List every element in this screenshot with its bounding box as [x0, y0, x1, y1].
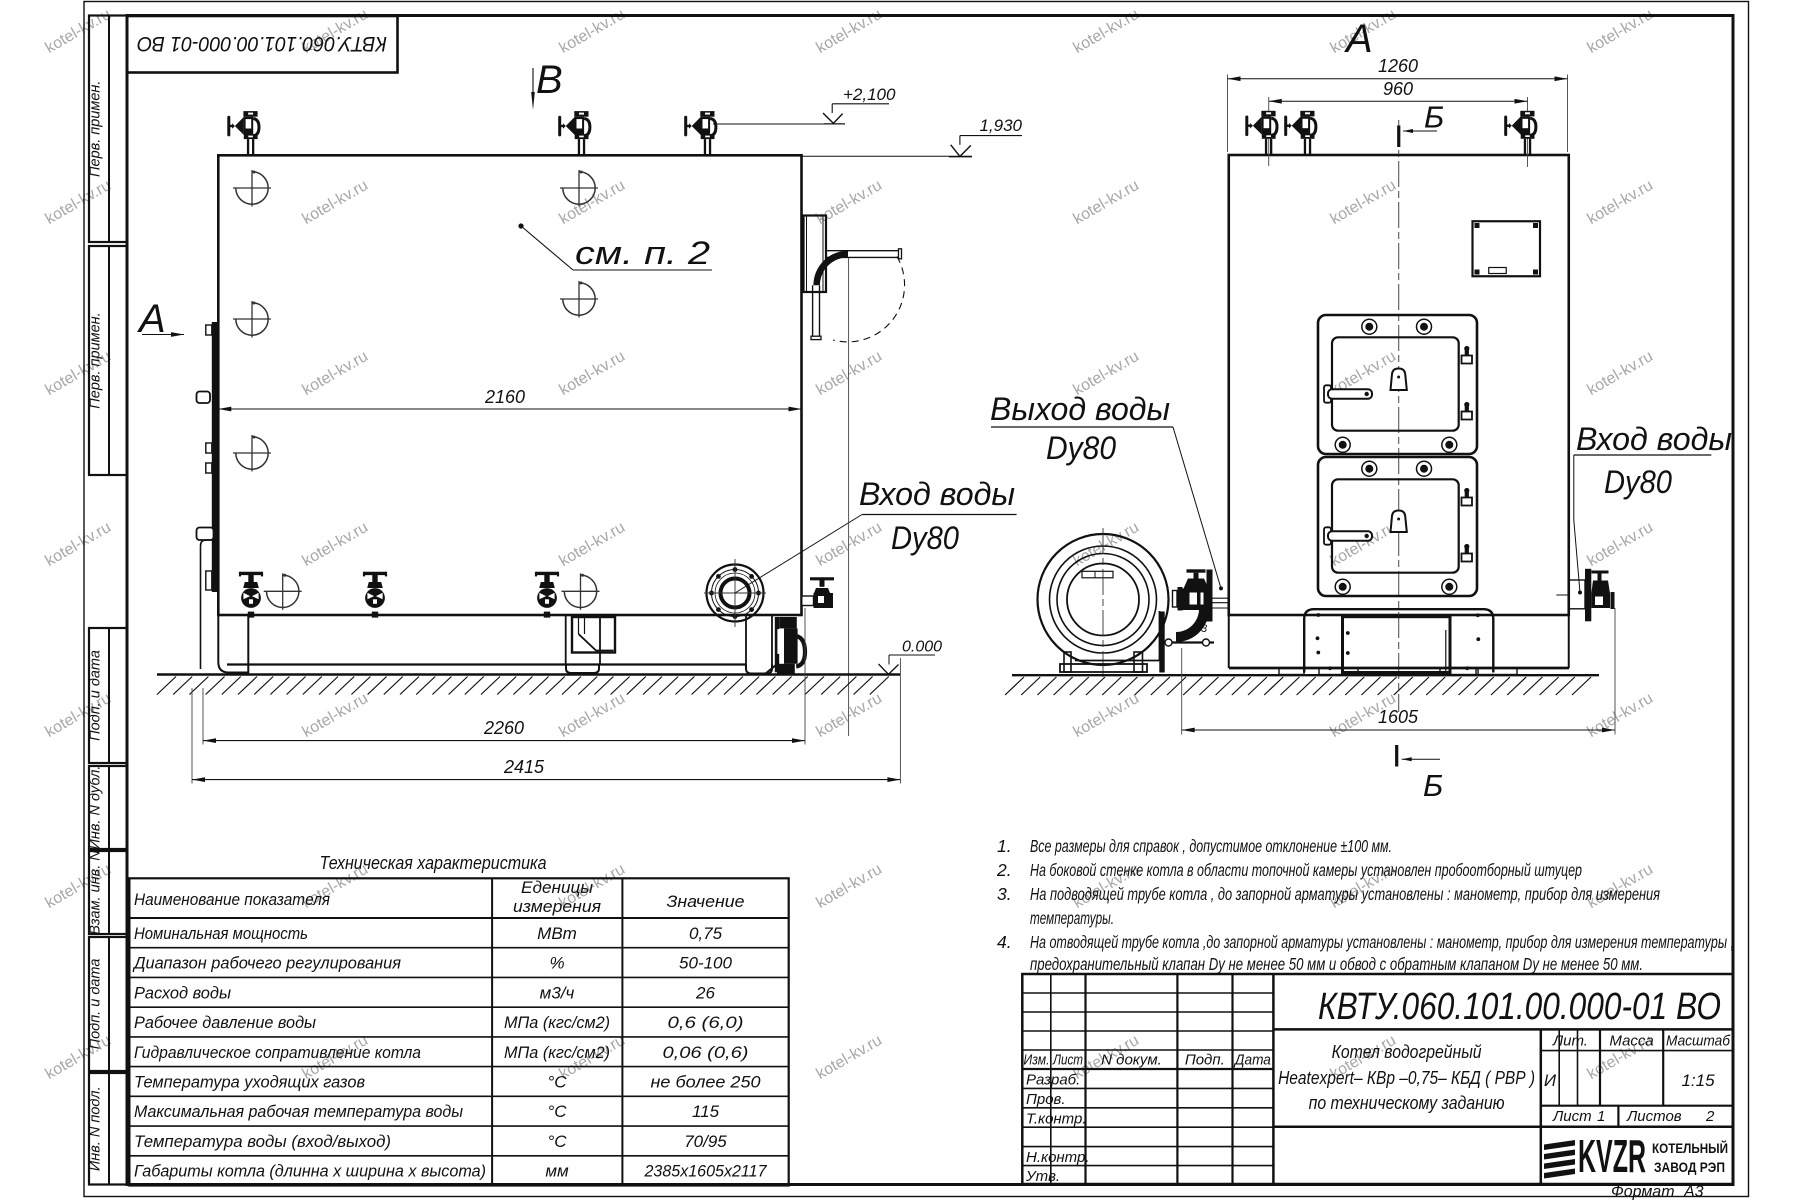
svg-text:МВт: МВт [537, 924, 577, 943]
svg-text:Значение: Значение [667, 892, 745, 911]
svg-text:0,75: 0,75 [689, 924, 723, 943]
svg-text:А3: А3 [1683, 1184, 1704, 1200]
svg-text:Подп. и дата: Подп. и дата [88, 650, 104, 741]
svg-text:предохранительный клапан Dу н: предохранительный клапан Dу не менее 50 … [1030, 954, 1643, 974]
svg-text:2260: 2260 [483, 718, 524, 738]
svg-text:И: И [1544, 1071, 1557, 1090]
svg-text:°С: °С [547, 1102, 567, 1121]
svg-text:КОТЕЛЬНЫЙ: КОТЕЛЬНЫЙ [1652, 1141, 1728, 1156]
svg-text:Перв. примен.: Перв. примен. [88, 312, 104, 408]
svg-text:Dy80: Dy80 [891, 520, 959, 556]
svg-text:1260: 1260 [1378, 56, 1418, 76]
svg-text:1:15: 1:15 [1681, 1071, 1715, 1090]
svg-text:°С: °С [547, 1132, 567, 1151]
svg-text:0,06 (0,6): 0,06 (0,6) [663, 1043, 749, 1062]
svg-text:2415: 2415 [503, 757, 545, 777]
svg-text:2160: 2160 [484, 387, 525, 407]
svg-text:+2,100: +2,100 [843, 85, 896, 104]
svg-text:Пров.: Пров. [1026, 1091, 1066, 1108]
svg-text:Все размеры для справок , допу: Все размеры для справок , допустимое отк… [1030, 836, 1392, 856]
svg-text:Выход воды: Выход воды [990, 391, 1170, 427]
svg-text:Лист: Лист [1552, 1108, 1592, 1125]
svg-text:Масштаб: Масштаб [1666, 1033, 1731, 1050]
svg-text:3: 3 [1201, 623, 1208, 635]
svg-text:Еденицы: Еденицы [521, 878, 593, 897]
svg-text:115: 115 [692, 1102, 720, 1121]
svg-text:Н.контр.: Н.контр. [1026, 1149, 1090, 1166]
svg-text:На боковой стенке котла в обла: На боковой стенке котла в области топочн… [1030, 860, 1582, 880]
svg-text:по техническому заданию: по техническому заданию [1309, 1093, 1505, 1113]
svg-text:26: 26 [695, 983, 715, 1002]
svg-text:Dy80: Dy80 [1604, 464, 1672, 500]
svg-text:Dy80: Dy80 [1046, 430, 1116, 466]
svg-text:Техническая характеристика: Техническая характеристика [320, 853, 547, 873]
svg-text:МПа (кгс/см2): МПа (кгс/см2) [504, 1043, 610, 1062]
svg-text:КВТУ.060.101.00.000-01 ВО: КВТУ.060.101.00.000-01 ВО [137, 32, 387, 55]
svg-text:1.: 1. [997, 836, 1012, 856]
svg-text:Взам. инв. N: Взам. инв. N [88, 850, 104, 935]
svg-text:Утв.: Утв. [1025, 1168, 1060, 1185]
svg-text:температуры.: температуры. [1030, 908, 1114, 928]
svg-text:0.000: 0.000 [902, 639, 942, 656]
svg-text:Дата: Дата [1233, 1052, 1271, 1069]
svg-text:960: 960 [1383, 79, 1413, 99]
svg-text:1,930: 1,930 [979, 116, 1022, 135]
svg-text:Температура уходящих газов: Температура уходящих газов [134, 1072, 365, 1091]
svg-text:МПа (кгс/см2): МПа (кгс/см2) [504, 1013, 610, 1032]
svg-text:В: В [536, 58, 563, 102]
svg-text:2.: 2. [996, 860, 1012, 880]
svg-text:не более 250: не более 250 [651, 1072, 762, 1091]
svg-text:Разраб.: Разраб. [1026, 1072, 1080, 1089]
svg-text:4.: 4. [997, 932, 1012, 952]
svg-text:0,6 (6,0): 0,6 (6,0) [668, 1013, 744, 1032]
svg-text:Heatexpert– КВр –0,75– КБД ( Р: Heatexpert– КВр –0,75– КБД ( РВР ) [1278, 1068, 1535, 1088]
svg-text:мм: мм [545, 1162, 569, 1181]
svg-text:м3/ч: м3/ч [540, 983, 575, 1002]
svg-text:Вход воды: Вход воды [859, 476, 1015, 512]
svg-text:Подп.: Подп. [1185, 1052, 1225, 1069]
svg-text:°С: °С [547, 1072, 567, 1091]
svg-text:1: 1 [1597, 1108, 1605, 1125]
svg-text:3.: 3. [997, 884, 1012, 904]
svg-text:Перв. примен.: Перв. примен. [88, 81, 104, 177]
svg-text:KVZR: KVZR [1578, 1130, 1646, 1182]
svg-text:Гидравлическое сопративление к: Гидравлическое сопративление котла [134, 1043, 421, 1062]
svg-text:Т.контр.: Т.контр. [1026, 1110, 1087, 1127]
svg-text:измерения: измерения [513, 897, 601, 916]
svg-text:Котел водогрейный: Котел водогрейный [1332, 1042, 1482, 1062]
svg-text:50-100: 50-100 [679, 954, 732, 973]
svg-text:Номинальная мощность: Номинальная мощность [134, 924, 308, 943]
svg-text:Формат: Формат [1611, 1184, 1675, 1200]
svg-text:КВТУ.060.101.00.000-01 ВО: КВТУ.060.101.00.000-01 ВО [1318, 986, 1721, 1028]
svg-text:На отводящей трубе котла ,до з: На отводящей трубе котла ,до запорной ар… [1030, 932, 1734, 952]
svg-text:Рабочее давление воды: Рабочее давление воды [134, 1013, 316, 1032]
svg-text:Листов: Листов [1626, 1108, 1682, 1125]
svg-text:2385х1605х2117: 2385х1605х2117 [644, 1162, 767, 1181]
svg-text:Температура воды (вход/выход): Температура воды (вход/выход) [134, 1132, 391, 1151]
svg-text:Диапазон рабочего регулировани: Диапазон рабочего регулирования [132, 954, 401, 973]
svg-text:Б: Б [1423, 768, 1443, 803]
svg-text:Максимальная рабочая температу: Максимальная рабочая температура воды [134, 1102, 463, 1121]
svg-text:2: 2 [1705, 1108, 1715, 1125]
svg-text:Расход воды: Расход воды [134, 983, 231, 1002]
svg-text:Подп. и дата: Подп. и дата [88, 959, 104, 1050]
svg-text:Лист: Лист [1052, 1052, 1083, 1069]
svg-text:Инв. N дубл.: Инв. N дубл. [88, 766, 104, 850]
svg-text:см. п. 2: см. п. 2 [575, 235, 710, 271]
svg-text:Масса: Масса [1609, 1033, 1653, 1050]
svg-text:А: А [1344, 17, 1373, 61]
svg-text:На подводящей трубе котла ,: На подводящей трубе котла , до запорной … [1030, 884, 1660, 904]
svg-text:Вход воды: Вход воды [1576, 421, 1732, 457]
svg-text:ЗАВОД РЭП: ЗАВОД РЭП [1654, 1160, 1725, 1175]
svg-text:Наименование показателя: Наименование показателя [134, 890, 330, 909]
svg-text:Инв. N подл.: Инв. N подл. [88, 1086, 104, 1171]
svg-text:70/95: 70/95 [684, 1132, 727, 1151]
svg-text:Изм.: Изм. [1024, 1052, 1050, 1069]
svg-text:Габариты котла (длинна х ширин: Габариты котла (длинна х ширина х высота… [134, 1162, 486, 1181]
svg-text:N докум.: N докум. [1101, 1052, 1162, 1069]
svg-text:Лит.: Лит. [1552, 1033, 1588, 1050]
svg-text:1605: 1605 [1378, 707, 1419, 727]
svg-text:%: % [549, 954, 564, 973]
svg-text:Б: Б [1424, 100, 1444, 135]
